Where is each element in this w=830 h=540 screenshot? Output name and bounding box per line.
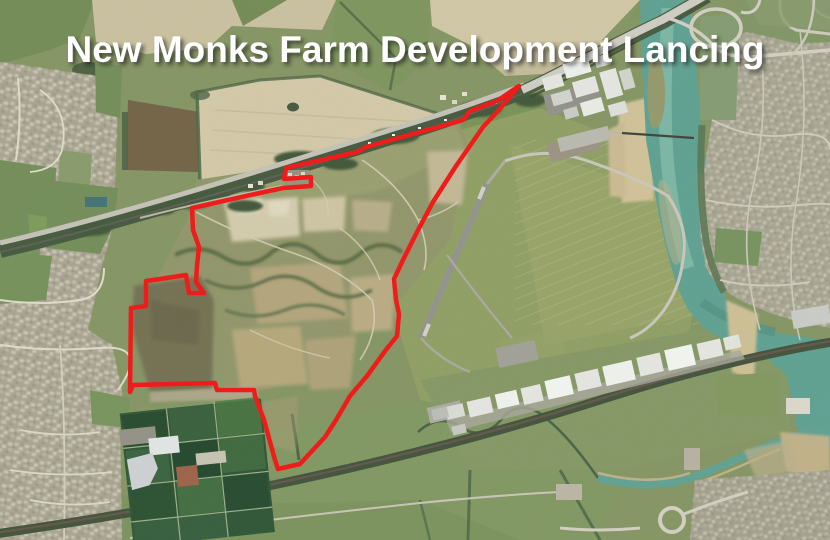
svg-text:New Monks Farm Development Lan: New Monks Farm Development Lancing <box>65 29 764 70</box>
